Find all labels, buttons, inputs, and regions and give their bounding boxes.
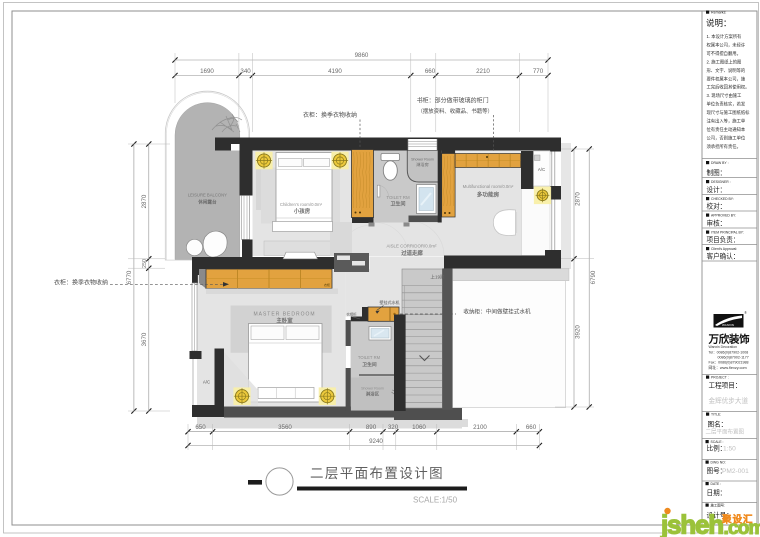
svg-text:TOILET RM: TOILET RM [386,195,410,200]
svg-text:可不得擅自翻用。: 可不得擅自翻用。 [707,50,741,57]
svg-text:A/C: A/C [203,380,210,385]
svg-text:250: 250 [142,259,148,268]
svg-text:TOILET RM: TOILET RM [358,355,381,360]
svg-text:2. 施工图纸上的图: 2. 施工图纸上的图 [707,58,742,65]
svg-text:ITEM PRINCIPAL BY:: ITEM PRINCIPAL BY: [711,231,744,235]
svg-text:Multifunctional room/0.0m²: Multifunctional room/0.0m² [463,184,514,189]
svg-text:衣柜: 衣柜 [324,282,330,287]
svg-text:过道走廊: 过道走廊 [401,249,423,257]
svg-text:说明：: 说明： [706,18,732,28]
svg-text:淋浴房: 淋浴房 [416,161,429,168]
svg-text:2870: 2870 [141,194,148,208]
svg-text:Shower Room: Shower Room [361,387,384,391]
svg-text:650: 650 [195,424,206,431]
svg-text:DESIGNER :: DESIGNER : [711,180,731,184]
svg-text:3560: 3560 [278,424,292,431]
svg-text:Remarks:: Remarks: [711,11,726,15]
svg-text:淋浴区: 淋浴区 [366,391,380,398]
svg-text:图名：: 图名： [708,420,728,429]
svg-text:SCALE:1/50: SCALE:1/50 [413,496,458,505]
svg-text:SCALE :: SCALE : [711,440,724,444]
svg-text:1:50: 1:50 [723,446,736,453]
svg-text:2100: 2100 [473,424,487,431]
svg-text:DATE :: DATE : [711,482,722,486]
svg-text:6770: 6770 [126,270,133,284]
svg-text:Children's room/0.0m²: Children's room/0.0m² [280,202,323,207]
svg-text:书柜：部分做带玻璃的柜门: 书柜：部分做带玻璃的柜门 [417,96,489,104]
svg-text:DRAW BY :: DRAW BY : [711,161,729,165]
svg-text:PM2-001: PM2-001 [722,468,749,475]
svg-text:0086(0)87902-1177: 0086(0)87902-1177 [718,356,749,360]
svg-text:上19踏: 上19踏 [430,274,445,281]
svg-text:日期：: 日期： [707,489,727,497]
svg-text:MASTER BEDROOM: MASTER BEDROOM [253,312,315,318]
svg-text:Tel：0086(0)87902-1008: Tel：0086(0)87902-1008 [709,351,749,355]
svg-text:890: 890 [366,424,377,431]
svg-text:Shower Room: Shower Room [411,158,434,162]
svg-text:二层平面布置图: 二层平面布置图 [706,428,745,436]
svg-text:主卧室: 主卧室 [276,317,293,325]
svg-text:注有出入等，施工单: 注有出入等，施工单 [707,118,746,125]
svg-text:单位负责核实，若发: 单位负责核实，若发 [707,101,746,108]
svg-text:网址：www.flexzy.com: 网址：www.flexzy.com [709,365,747,370]
svg-text:660: 660 [425,68,436,75]
svg-text:多功能房: 多功能房 [477,191,500,199]
svg-text:卫生间: 卫生间 [390,201,405,208]
svg-text:衣帽柜: 衣帽柜 [346,312,357,317]
svg-text:施工图号:: 施工图号: [711,503,726,508]
svg-text:Wanxin Decoration: Wanxin Decoration [709,345,738,349]
svg-text:校对：: 校对： [707,202,727,211]
svg-text:CHECKED BY:: CHECKED BY: [711,197,734,201]
svg-text:APPROVED BY:: APPROVED BY: [711,214,736,218]
svg-text:3920: 3920 [575,325,582,339]
svg-text:WANXIN: WANXIN [722,323,734,327]
svg-text:jsheh: jsheh [660,510,723,537]
svg-text:2210: 2210 [476,68,490,75]
svg-text:聚设汇: 聚设汇 [721,514,754,526]
svg-text:4190: 4190 [328,68,342,75]
svg-text:1690: 1690 [200,68,214,75]
svg-text:320: 320 [388,424,399,431]
svg-text:设计：: 设计： [707,185,727,194]
svg-text:1060: 1060 [412,424,426,431]
svg-text:DWG NO:: DWG NO: [711,461,726,465]
svg-text:（摆放资料、收藏品、书籍等）: （摆放资料、收藏品、书籍等） [417,107,492,115]
svg-text:340: 340 [240,68,251,75]
svg-text:项目负责：: 项目负责： [707,235,740,244]
svg-text:6790: 6790 [590,270,597,284]
svg-text:二层平面布置设计图: 二层平面布置设计图 [310,466,444,481]
svg-text:3. 现场尺寸由施工: 3. 现场尺寸由施工 [707,92,743,99]
svg-text:®: ® [744,311,747,315]
svg-text:衣柜：换季衣物收纳: 衣柜：换季衣物收纳 [54,279,108,287]
svg-text:3670: 3670 [141,332,148,346]
svg-text:小孩房: 小孩房 [294,207,311,215]
svg-text:770: 770 [533,68,544,75]
svg-text:2870: 2870 [575,192,582,206]
svg-text:金辉优步大道: 金辉优步大道 [709,396,749,405]
svg-text:公司，否则施工单位: 公司，否则施工单位 [707,134,746,141]
svg-text:权属本公司，未经许: 权属本公司，未经许 [707,41,746,48]
svg-text:Client’s Approval:: Client’s Approval: [711,247,737,251]
svg-text:PROJECT :: PROJECT : [711,376,729,380]
svg-text:审核：: 审核： [707,219,727,228]
svg-text:9240: 9240 [369,438,383,445]
svg-text:A/C: A/C [538,167,545,172]
svg-text:制图：: 制图： [707,168,727,177]
svg-text:Fax：0086(0)879021988: Fax：0086(0)879021988 [709,361,749,365]
svg-text:万欣装饰: 万欣装饰 [708,333,751,346]
svg-text:AISLE CORRIDOR/0.0m²: AISLE CORRIDOR/0.0m² [386,244,437,249]
svg-text:客户确认：: 客户确认： [707,252,740,261]
svg-text:须承担所有责任。: 须承担所有责任。 [707,143,741,150]
svg-text:卫生间: 卫生间 [362,361,377,368]
svg-text:位有责任主动通知本: 位有责任主动通知本 [707,126,746,133]
svg-text:现尺寸与施工图纸纸标: 现尺寸与施工图纸纸标 [707,109,751,116]
svg-text:收纳柜：中间做壁挂式水机: 收纳柜：中间做壁挂式水机 [463,308,531,316]
svg-text:形、文字、说明等的: 形、文字、说明等的 [707,67,746,74]
svg-text:660: 660 [526,424,537,431]
svg-text:1. 本设计方案所有: 1. 本设计方案所有 [707,33,743,40]
svg-text:要件权属本公司，施: 要件权属本公司，施 [707,75,746,82]
svg-text:衣柜：换季衣物收纳: 衣柜：换季衣物收纳 [303,111,357,119]
svg-text:工程项目：: 工程项目： [709,381,742,390]
svg-text:休闲露台: 休闲露台 [197,199,217,206]
svg-text:LEISURE BALCONY: LEISURE BALCONY [188,193,227,198]
svg-text:9860: 9860 [355,52,369,59]
svg-text:壁挂式水机: 壁挂式水机 [380,299,400,305]
svg-text:工完后收回其使用权。: 工完后收回其使用权。 [707,84,750,91]
svg-text:TITLE:: TITLE: [711,413,721,417]
